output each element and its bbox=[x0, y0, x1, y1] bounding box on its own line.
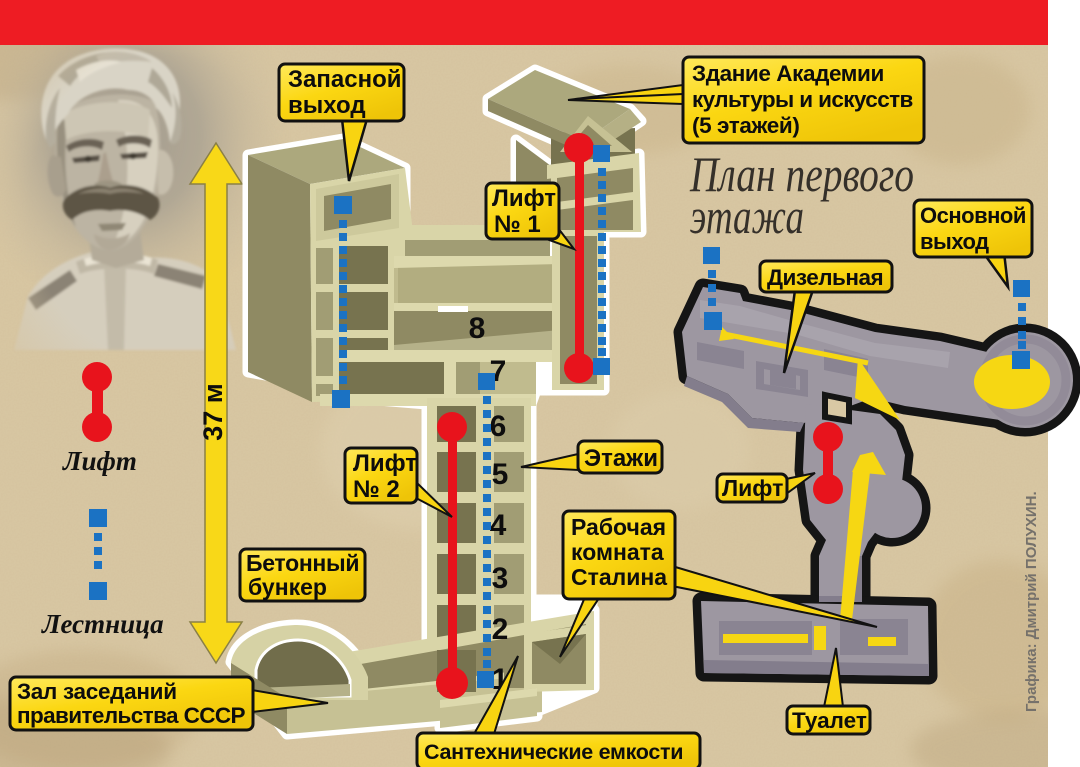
svg-text:Лифт: Лифт bbox=[62, 446, 137, 476]
svg-text:Лифт: Лифт bbox=[492, 185, 556, 212]
svg-text:Сантехнические емкости: Сантехнические емкости bbox=[424, 740, 683, 764]
svg-text:Этажи: Этажи bbox=[584, 445, 658, 472]
svg-text:культуры и искусств: культуры и искусств bbox=[692, 87, 913, 112]
svg-text:выход: выход bbox=[288, 92, 366, 119]
svg-text:Рабочая: Рабочая bbox=[571, 514, 666, 540]
svg-text:бункер: бункер bbox=[248, 574, 327, 600]
svg-text:4: 4 bbox=[490, 509, 507, 542]
svg-text:№ 2: № 2 bbox=[353, 476, 400, 503]
svg-text:3: 3 bbox=[492, 562, 509, 595]
svg-text:Зал заседаний: Зал заседаний bbox=[17, 679, 177, 704]
svg-text:Сталина: Сталина bbox=[571, 564, 667, 590]
svg-text:этажа: этажа bbox=[690, 188, 804, 244]
svg-text:Дизельная: Дизельная bbox=[767, 265, 883, 290]
svg-text:Основной: Основной bbox=[920, 203, 1026, 228]
svg-text:8: 8 bbox=[469, 312, 486, 345]
svg-text:Туалет: Туалет bbox=[792, 708, 867, 733]
svg-text:правительства СССР: правительства СССР bbox=[17, 703, 246, 728]
svg-text:комната: комната bbox=[571, 539, 664, 565]
svg-text:6: 6 bbox=[490, 410, 507, 443]
svg-text:Запасной: Запасной bbox=[288, 66, 401, 93]
svg-text:(5 этажей): (5 этажей) bbox=[692, 113, 799, 138]
svg-text:5: 5 bbox=[492, 458, 509, 491]
svg-text:Лестница: Лестница bbox=[41, 609, 164, 639]
svg-text:Графика: Дмитрий ПОЛУХИН.: Графика: Дмитрий ПОЛУХИН. bbox=[1023, 491, 1040, 712]
svg-text:№ 1: № 1 bbox=[494, 211, 541, 238]
svg-text:Бетонный: Бетонный bbox=[246, 550, 359, 576]
svg-text:Лифт: Лифт bbox=[353, 450, 417, 477]
svg-text:Лифт: Лифт bbox=[722, 475, 783, 501]
svg-text:2: 2 bbox=[492, 613, 509, 646]
svg-text:Здание Академии: Здание Академии bbox=[692, 61, 884, 86]
svg-text:37 м: 37 м bbox=[198, 383, 228, 441]
svg-text:выход: выход bbox=[920, 229, 989, 254]
